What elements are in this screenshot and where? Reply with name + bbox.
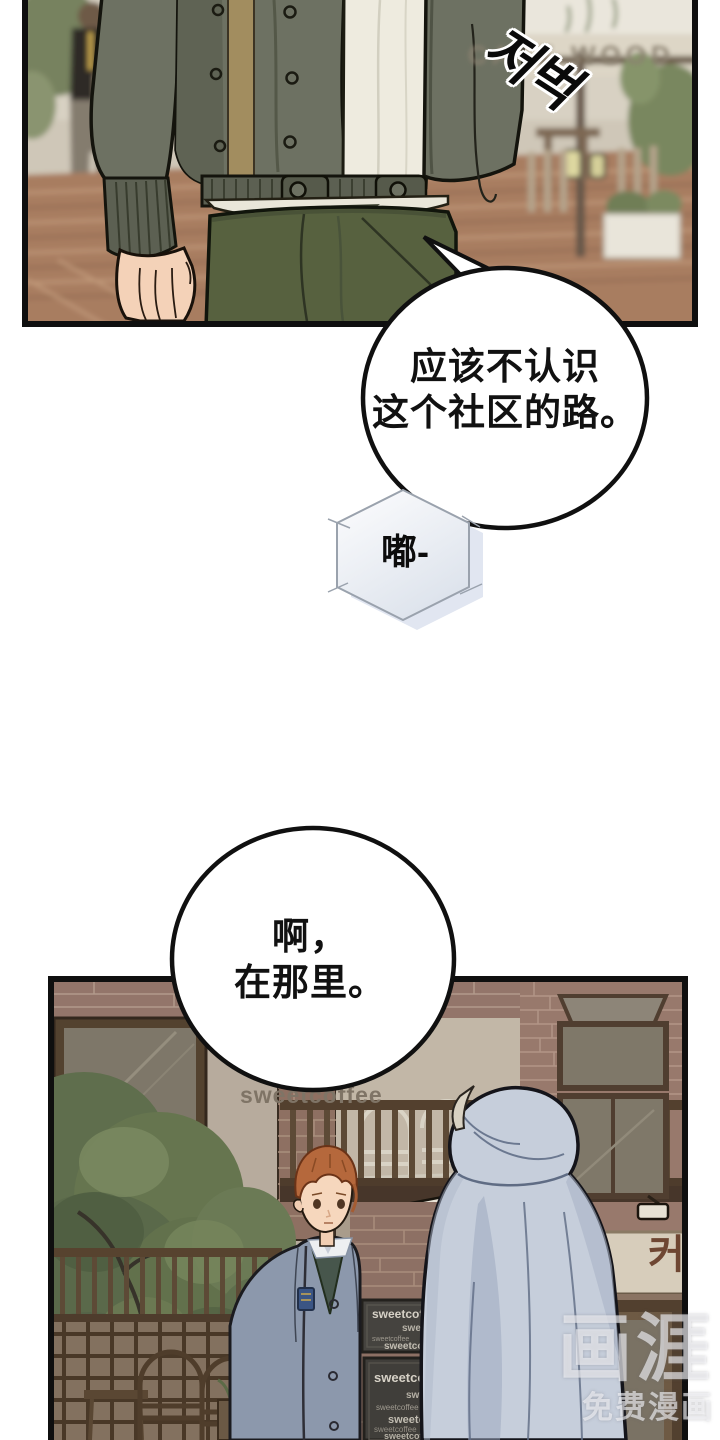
watermark-logo: 画涯 bbox=[558, 1312, 714, 1386]
korean-coffee-sign: 커 bbox=[648, 1222, 685, 1280]
cardigan-trim-stripe bbox=[228, 0, 254, 180]
speech-line: 这个社区的路。 bbox=[365, 390, 645, 436]
menu-line: sweetcoffee bbox=[376, 1403, 419, 1412]
wall-lamp bbox=[638, 1204, 668, 1219]
speech-line: 啊， bbox=[190, 914, 430, 960]
watermark-tagline: 免费漫画 bbox=[558, 1392, 714, 1423]
comic-page: CAFE WOOD 저벅 bbox=[0, 0, 720, 1440]
speech-line: 应该不认识 bbox=[365, 344, 645, 390]
speech-bubble-2-text: 啊， 在那里。 bbox=[190, 914, 430, 1006]
school-emblem bbox=[298, 1288, 314, 1310]
sfx-hex-text: 嘟- bbox=[340, 530, 470, 574]
white-shirt bbox=[343, 0, 428, 191]
cardigan-left-sleeve bbox=[91, 0, 180, 180]
speech-line: 在那里。 bbox=[190, 960, 430, 1006]
watermark: 画涯 免费漫画 bbox=[558, 1312, 714, 1423]
speech-bubble-1-text: 应该不认识 这个社区的路。 bbox=[365, 344, 645, 436]
